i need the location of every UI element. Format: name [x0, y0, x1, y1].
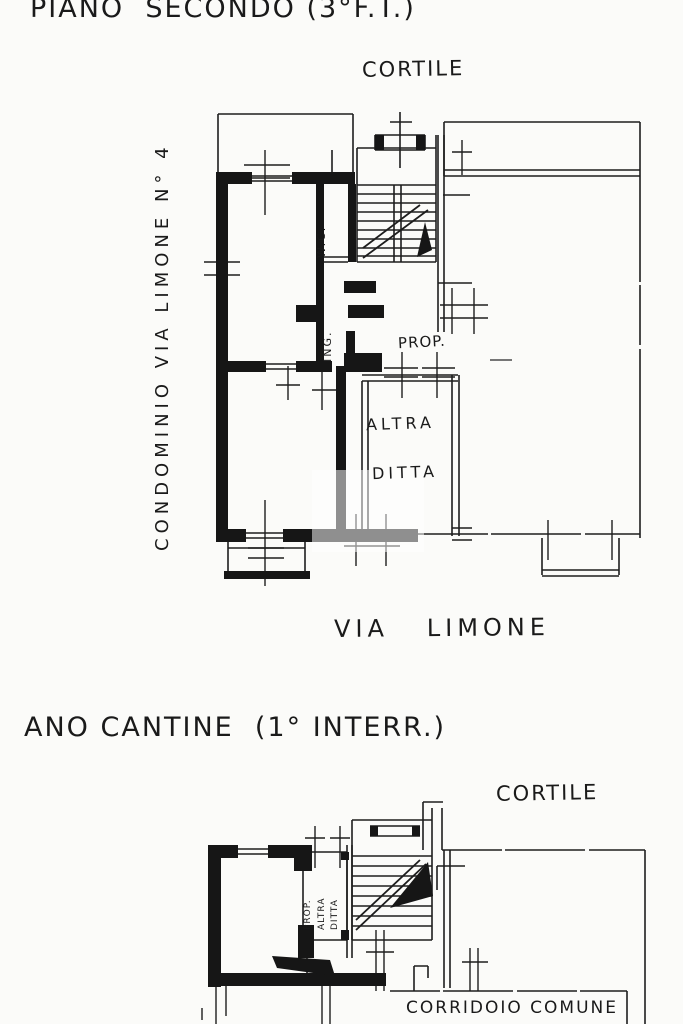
cell-prop-label: PROP. [303, 868, 313, 930]
scanned-floor-plan-page: PIANO SECONDO (3°F.T.) CORTILE CONDOMINI… [0, 0, 683, 1024]
upper-plan-title: PIANO SECONDO (3°F.T.) [30, 0, 416, 24]
cell-ditta-label: DITTA [330, 868, 340, 930]
altra-label: ALTRA [366, 413, 435, 434]
scan-watermark [312, 470, 424, 552]
ing-room-label: ING. [321, 296, 334, 362]
floor-plan-drawing [0, 0, 683, 1024]
wc-room-label: W.C. [315, 196, 328, 258]
lower-cortile-label: CORTILE [496, 780, 599, 806]
condominio-margin-label: CONDOMINIO VIA LIMONE N° 4 [152, 103, 173, 551]
lower-plan-thin-walls [202, 802, 645, 1024]
via-limone-street-label: VIA LIMONE [334, 613, 550, 643]
prop-label-upper: PROP. [398, 332, 447, 352]
corridoio-comune-label: CORRIDOIO COMUNE [406, 998, 618, 1018]
lower-plan-title: ANO CANTINE (1° INTERR.) [24, 712, 446, 743]
upper-cortile-label: CORTILE [362, 56, 465, 82]
cell-altra-label: ALTRA [317, 868, 327, 930]
ditta-label: DITTA [372, 462, 439, 483]
